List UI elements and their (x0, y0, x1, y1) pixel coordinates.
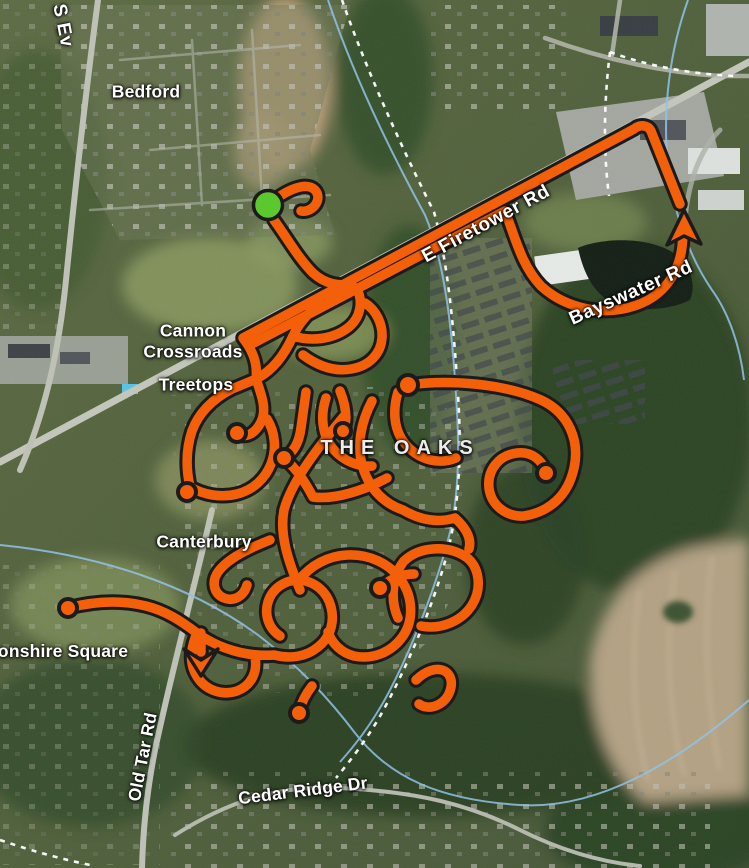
map-canvas[interactable]: S Ev Bedford Cannon Crossroads Treetops … (0, 0, 749, 868)
route-start-marker (254, 191, 283, 220)
satellite-map (0, 0, 749, 868)
